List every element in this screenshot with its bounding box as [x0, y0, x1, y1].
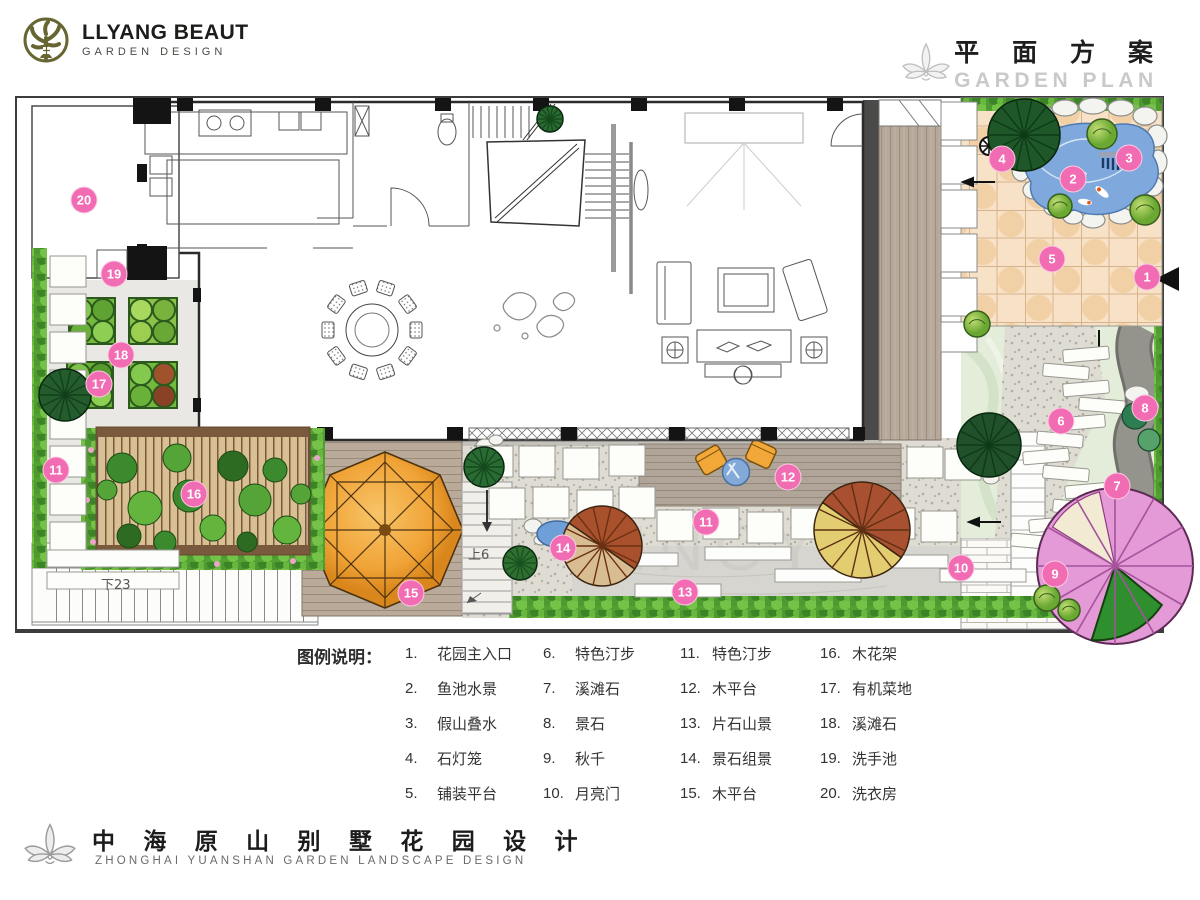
garden-plan-drawing: XINGYI XINGYI 12345678910111112131415161…	[15, 96, 1164, 633]
plan-marker-15: 15	[398, 580, 425, 607]
plan-marker-16: 16	[181, 481, 208, 508]
legend-item: 15.木平台	[680, 776, 772, 811]
lotus-icon	[900, 42, 952, 82]
legend-item: 16.木花架	[820, 636, 912, 671]
legend-item: 2.鱼池水景	[405, 671, 512, 706]
legend-item: 3.假山叠水	[405, 706, 512, 741]
deck-table	[723, 459, 750, 486]
plan-marker-17: 17	[86, 371, 113, 398]
stair-count-label: 上6	[468, 544, 489, 563]
plan-marker-8: 8	[1132, 395, 1159, 422]
legend-item: 11.特色汀步	[680, 636, 772, 671]
plan-marker-12: 12	[775, 464, 802, 491]
plan-marker-11: 11	[43, 457, 70, 484]
plan-marker-10: 10	[948, 555, 975, 582]
side-deck-walkway	[879, 100, 941, 440]
window-band	[469, 428, 849, 440]
plan-marker-13: 13	[672, 579, 699, 606]
plan-marker-19: 19	[101, 261, 128, 288]
side-wall	[863, 100, 879, 440]
plan-marker-18: 18	[108, 342, 135, 369]
plan-marker-3: 3	[1116, 145, 1143, 172]
plan-canvas: XINGYI XINGYI	[17, 98, 1162, 629]
stair-count-label: 下23	[101, 574, 131, 593]
parasol	[307, 452, 463, 608]
legend-item: 7.溪滩石	[543, 671, 635, 706]
legend-item: 4.石灯笼	[405, 741, 512, 776]
legend-column-3: 11.特色汀步12.木平台13.片石山景14.景石组景15.木平台	[680, 636, 772, 811]
legend-item: 1.花园主入口	[405, 636, 512, 671]
plan-marker-4: 4	[989, 146, 1016, 173]
legend-item: 6.特色汀步	[543, 636, 635, 671]
legend-item: 13.片石山景	[680, 706, 772, 741]
legend-column-2: 6.特色汀步7.溪滩石8.景石9.秋千10.月亮门	[543, 636, 635, 811]
plan-marker-7: 7	[1104, 473, 1131, 500]
legend-item: 5.铺装平台	[405, 776, 512, 811]
dining-table	[346, 304, 398, 356]
legend-item: 19.洗手池	[820, 741, 912, 776]
legend: 图例说明： 1.花园主入口2.鱼池水景3.假山叠水4.石灯笼5.铺装平台6.特色…	[0, 636, 1200, 814]
plan-marker-5: 5	[1039, 246, 1066, 273]
legend-item: 10.月亮门	[543, 776, 635, 811]
project-title-en: ZHONGHAI YUANSHAN GARDEN LANDSCAPE DESIG…	[95, 855, 526, 867]
plan-title-cn: 平 面 方 案	[954, 40, 1166, 68]
legend-column-1: 1.花园主入口2.鱼池水景3.假山叠水4.石灯笼5.铺装平台	[405, 636, 512, 811]
plan-marker-9: 9	[1042, 561, 1069, 588]
legend-column-4: 16.木花架17.有机菜地18.溪滩石19.洗手池20.洗衣房	[820, 636, 912, 811]
legend-item: 14.景石组景	[680, 741, 772, 776]
plan-marker-1: 1	[1134, 264, 1161, 291]
plan-marker-6: 6	[1048, 408, 1075, 435]
legend-heading: 图例说明：	[297, 643, 382, 668]
plan-marker-14: 14	[550, 535, 577, 562]
brand-tagline: GARDEN DESIGN	[82, 47, 249, 58]
legend-item: 9.秋千	[543, 741, 635, 776]
plan-marker-20: 20	[71, 187, 98, 214]
legend-item: 18.溪滩石	[820, 706, 912, 741]
bottom-hedge	[509, 596, 1057, 618]
brand-name: LLYANG BEAUT	[82, 22, 249, 43]
page-title: 平 面 方 案 GARDEN PLAN	[954, 40, 1166, 93]
footer-lotus-icon	[22, 822, 78, 866]
legend-item: 12.木平台	[680, 671, 772, 706]
legend-item: 17.有机菜地	[820, 671, 912, 706]
legend-item: 8.景石	[543, 706, 635, 741]
brand-logo: LLYANG BEAUT GARDEN DESIGN	[22, 16, 249, 64]
plan-marker-2: 2	[1060, 166, 1087, 193]
tree-logo-icon	[22, 16, 70, 64]
project-title-cn: 中 海 原 山 别 墅 花 园 设 计	[92, 822, 589, 856]
legend-item: 20.洗衣房	[820, 776, 912, 811]
plan-title-en: GARDEN PLAN	[954, 68, 1166, 93]
plan-marker-11: 11	[693, 509, 720, 536]
